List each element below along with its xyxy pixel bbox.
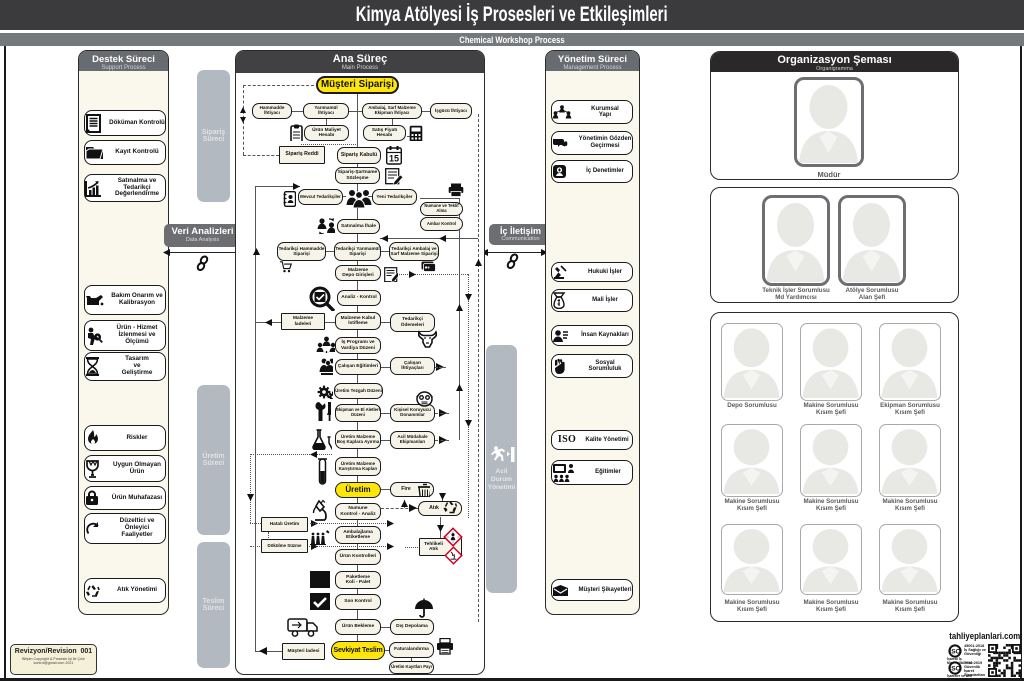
svg-text:ISO: ISO [949,649,960,656]
svg-text:15: 15 [389,154,399,164]
svg-text:ISO: ISO [949,666,960,673]
